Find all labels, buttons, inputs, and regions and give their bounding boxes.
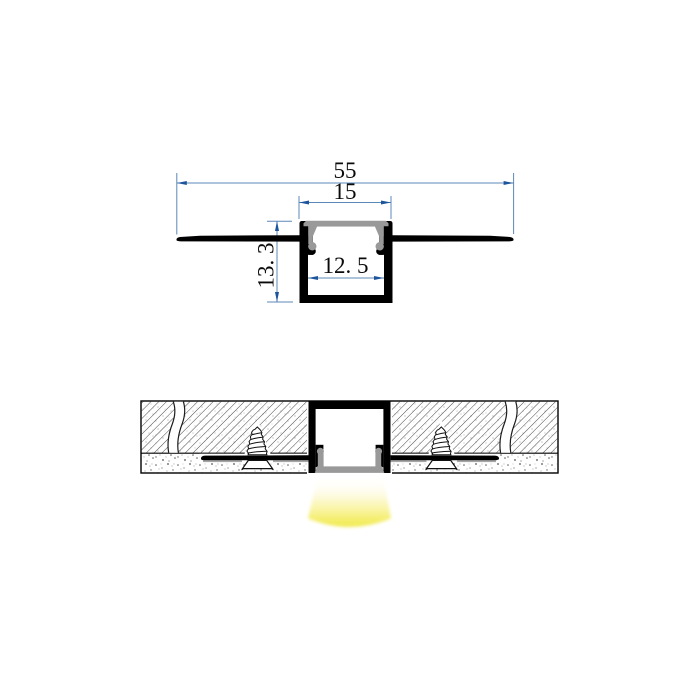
svg-text:15: 15: [334, 179, 357, 204]
svg-text:13. 3: 13. 3: [254, 243, 279, 289]
svg-text:12. 5: 12. 5: [323, 253, 369, 278]
